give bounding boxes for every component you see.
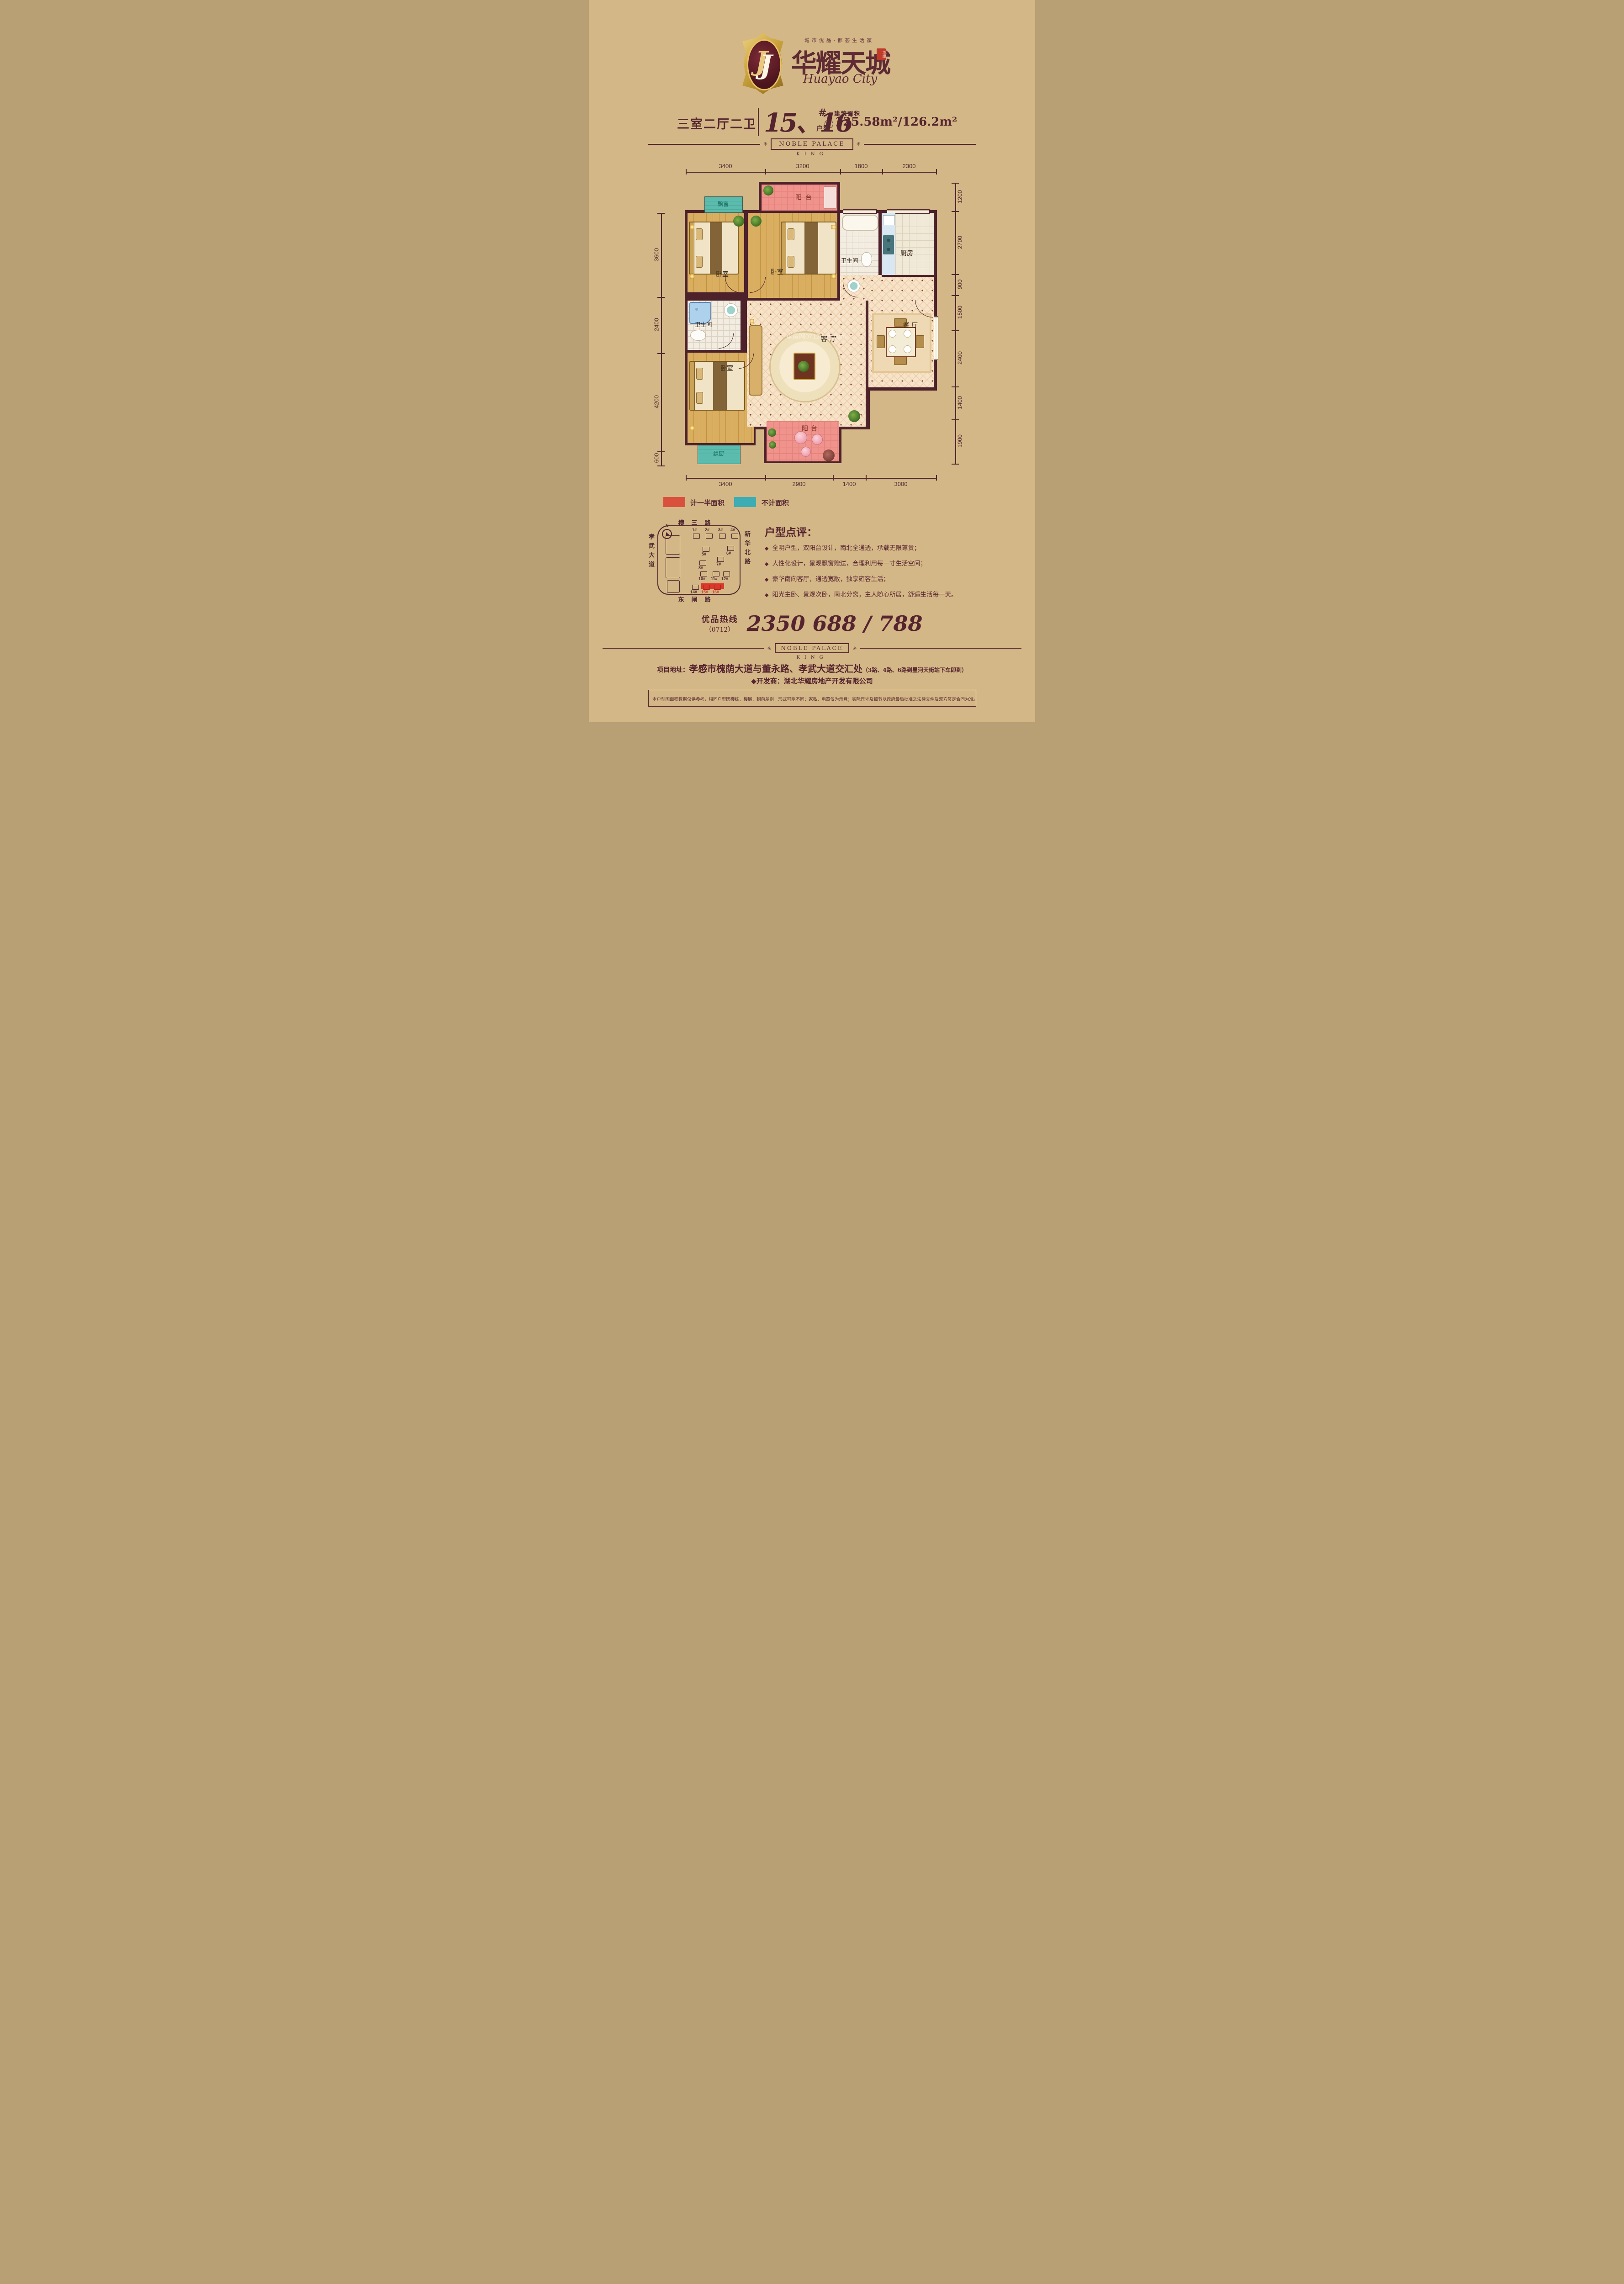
coffee-table-flowers — [798, 361, 809, 372]
dim-tick — [686, 475, 687, 481]
dining-chair — [916, 335, 924, 348]
stove — [883, 235, 894, 254]
review-bullet-text: 豪华南向客厅，通透宽敞，独享雍容生活； — [772, 576, 889, 583]
dim-right-4: 1500 — [957, 303, 963, 322]
dim-tick — [657, 213, 665, 214]
bedroom-1-label: 卧室 — [716, 270, 729, 279]
unit-hash: # — [818, 107, 826, 119]
sitemap-road-bottom: 东闸路 — [657, 595, 739, 603]
dining-room-label: 餐厅 — [903, 321, 920, 330]
balcony-south-plant — [768, 428, 776, 437]
plate — [904, 345, 911, 353]
area-value: 125.58m²/126.2m² — [835, 115, 957, 129]
review-bullets: ◆全明户型，双阳台设计，南北全通透，承载无限尊贵； ◆人性化设计，景观飘窗赠送，… — [765, 545, 984, 607]
kitchen-label: 厨房 — [900, 248, 913, 258]
review-bullet-text: 人性化设计，景观飘窗赠送，合理利用每一寸生活空间； — [772, 560, 926, 567]
diamond-icon: ◆ — [765, 576, 768, 582]
building-1 — [693, 534, 700, 539]
dim-top-1: 3400 — [712, 163, 739, 169]
banner-line-left — [603, 648, 764, 649]
building-label-7: 7# — [716, 562, 721, 566]
building-16 — [714, 585, 721, 590]
address-row: 项目地址：孝感市槐荫大道与董永路、孝武大道交汇处（3路、4路、6路到星河天街站下… — [589, 661, 1035, 675]
dim-right-5: 2400 — [957, 349, 963, 367]
hotline: 优品热线 （0712） 2350 688 / 788 — [589, 611, 1035, 636]
building-label-10: 10# — [698, 576, 705, 581]
plate — [889, 330, 896, 338]
address-note: （3路、4路、6路到星河天街站下车即到） — [862, 667, 967, 673]
banner-ornament-left: ✳ — [763, 141, 767, 147]
bed-2-headboard — [782, 222, 786, 274]
sitemap-road-left: 孝武大道 — [646, 534, 655, 570]
amenity-building — [666, 535, 680, 555]
building-label-6: 6# — [726, 551, 731, 555]
dim-tick — [686, 169, 687, 174]
building-label-11: 11# — [711, 576, 718, 581]
balcony-north-plant — [763, 185, 773, 196]
dim-tick — [657, 297, 665, 298]
dim-tick — [882, 169, 883, 174]
brand-emblem: J J — [736, 33, 790, 94]
review-title: 户型点评： — [765, 523, 817, 539]
unit-rooms: 三室二厅二卫 — [677, 114, 756, 132]
dim-bottom-4: 3000 — [887, 481, 915, 487]
dim-left-1: 3600 — [653, 246, 660, 264]
banner-king-bottom: KING — [589, 655, 1035, 660]
bed-2-pillow — [788, 228, 794, 240]
dim-right-6: 1400 — [957, 394, 963, 412]
banner-ornament-right: ✳ — [852, 645, 857, 651]
legend-half-label: 计一半面积 — [690, 498, 725, 508]
diamond-icon: ◆ — [765, 545, 768, 551]
noble-banner-bottom: ✳ NOBLE PALACE ✳ — [603, 643, 1021, 653]
building-10 — [700, 571, 707, 576]
area-approx: 约 — [825, 120, 833, 128]
dim-right-3: 900 — [957, 275, 963, 294]
banner-king-top: KING — [589, 152, 1035, 157]
dim-top-3: 1800 — [847, 163, 875, 169]
toilet-1 — [861, 252, 872, 267]
balcony-south-label: 阳台 — [802, 424, 820, 433]
balcony-north-label: 阳台 — [795, 193, 815, 202]
amenity-building — [666, 557, 680, 578]
bedroom-2-label: 卧室 — [771, 267, 783, 276]
building-label-16: 16# — [712, 590, 719, 594]
hotline-area-code: （0712） — [701, 625, 738, 634]
review-bullet: ◆全明户型，双阳台设计，南北全通透，承载无限尊贵； — [765, 545, 984, 552]
bed-2 — [781, 222, 836, 275]
bed-1-pillow — [696, 256, 703, 268]
building-6 — [727, 546, 734, 551]
hotline-label: 优品热线 — [701, 613, 738, 625]
living-plant — [848, 410, 860, 422]
dim-tick — [866, 475, 867, 481]
disclaimer-text: 本户型图面积数据仅供参考，相同户型因楼栋、楼层、朝向差别，形式可能不同；家私、电… — [652, 697, 978, 702]
bedroom-2-plant — [751, 216, 762, 227]
diamond-icon: ◆ — [765, 561, 768, 567]
bed-3-headboard — [690, 362, 695, 410]
review-bullet-text: 全明户型，双阳台设计，南北全通透，承载无限尊贵； — [772, 545, 920, 552]
dim-tick — [952, 274, 959, 275]
banner-line-right — [864, 144, 976, 145]
banner-ornament-left: ✳ — [767, 645, 771, 651]
building-label-14: 14# — [690, 590, 697, 594]
legend-none-swatch — [734, 497, 756, 507]
building-label-2: 2# — [705, 528, 709, 532]
dim-line-bottom — [686, 478, 936, 479]
dim-tick — [765, 169, 766, 174]
sitemap-road-top: 横三路 — [657, 518, 739, 527]
banner-ornament-right: ✳ — [857, 141, 861, 147]
balcony-table — [801, 447, 811, 457]
bed-3 — [689, 361, 745, 411]
dim-tick — [657, 451, 665, 452]
banner-title: NOBLE PALACE — [771, 138, 853, 150]
bed-2-pillow — [788, 256, 794, 268]
building-11 — [713, 571, 719, 576]
building-3 — [719, 534, 726, 539]
brand-seal: 华耀 — [877, 48, 886, 60]
bathroom-2-label: 卫生间 — [695, 320, 712, 328]
dim-tick — [936, 475, 937, 481]
disclaimer-box: 本户型图面积数据仅供参考，相同户型因楼栋、楼层、朝向差别，形式可能不同；家私、电… — [648, 690, 976, 707]
compass-n-label: N — [666, 523, 669, 528]
wall-lamp — [690, 274, 694, 279]
balcony-table — [812, 434, 823, 445]
brand-name-en: Huayao City — [799, 72, 881, 86]
building-14 — [692, 585, 699, 590]
bed-1-blanket — [710, 222, 722, 274]
dim-right-2: 2700 — [957, 233, 963, 252]
dim-line-top — [686, 172, 936, 173]
title-divider — [758, 108, 759, 136]
bathtub — [842, 215, 878, 231]
sitemap-road-right: 新华北路 — [742, 531, 751, 567]
dim-right-7: 1900 — [957, 432, 963, 450]
dim-tick — [952, 419, 959, 420]
bed-3-pillow — [696, 368, 703, 380]
building-label-12: 12# — [721, 576, 728, 581]
bay-window-north-label: 飘窗 — [704, 200, 742, 208]
review-bullet: ◆阳光主卧、景观次卧，南北分离，主人随心所居，舒适生活每一天。 — [765, 591, 984, 599]
dining-chair — [877, 335, 885, 348]
dim-tick — [657, 465, 665, 466]
building-label-3: 3# — [718, 528, 723, 532]
plate — [889, 345, 896, 353]
dim-right-1: 1200 — [957, 188, 963, 206]
dim-top-4: 2300 — [895, 163, 923, 169]
plate — [904, 330, 911, 338]
legend-half-swatch — [663, 497, 685, 507]
dim-bottom-3: 1400 — [836, 481, 863, 487]
balcony-table — [794, 431, 807, 444]
hotline-label-block: 优品热线 （0712） — [701, 613, 738, 634]
dim-line-left — [661, 213, 662, 465]
noble-banner-top: ✳ NOBLE PALACE ✳ — [648, 138, 976, 150]
wall-lamp — [831, 274, 836, 279]
building-label-1: 1# — [692, 528, 697, 532]
dim-tick — [952, 211, 959, 212]
watermark: 孝房网0712fang.com — [786, 332, 846, 341]
sink-2 — [724, 303, 738, 317]
building-label-5: 5# — [702, 552, 706, 556]
dim-tick — [840, 169, 841, 174]
diamond-icon: ◆ — [765, 592, 768, 598]
bed-1-pillow — [696, 228, 703, 240]
building-12 — [723, 571, 730, 576]
washing-machine — [824, 186, 836, 209]
wall-lamp — [690, 225, 694, 229]
poster: J J 城市优品·都荟生活家 华耀天城 华耀 Huayao City 三室二厅二… — [589, 0, 1035, 722]
balcony-south-plant — [769, 441, 776, 449]
window-dining — [934, 316, 938, 360]
review-bullet: ◆人性化设计，景观飘窗赠送，合理利用每一寸生活空间； — [765, 560, 984, 568]
dining-chair — [894, 357, 907, 365]
balcony-bush — [823, 449, 835, 461]
building-label-15: 15# — [701, 590, 708, 594]
dim-line-right — [955, 183, 956, 464]
building-4 — [731, 534, 738, 539]
emblem-monogram: J — [760, 49, 772, 80]
building-2 — [706, 534, 713, 539]
banner-line-left — [648, 144, 760, 145]
address-label: 项目地址： — [657, 666, 689, 674]
toilet-2 — [690, 330, 706, 341]
wall-lamp — [831, 225, 836, 229]
amenity-building — [667, 580, 680, 593]
banner-title: NOBLE PALACE — [775, 643, 850, 653]
address-value: 孝感市槐荫大道与董永路、孝武大道交汇处 — [689, 663, 862, 674]
dim-tick — [952, 464, 959, 465]
bed-2-blanket — [804, 222, 819, 274]
dim-tick — [936, 169, 937, 174]
dim-tick — [952, 183, 959, 184]
bay-window-south-label: 飘窗 — [698, 449, 740, 457]
window-bath1 — [843, 209, 877, 214]
bedroom-3-label: 卧室 — [720, 364, 733, 373]
bed-1 — [689, 222, 739, 275]
building-8 — [699, 560, 706, 566]
dim-tick — [833, 475, 834, 481]
banner-line-right — [860, 648, 1021, 649]
legend-none-label: 不计面积 — [762, 498, 789, 508]
bed-1-headboard — [690, 222, 694, 274]
dim-tick — [952, 386, 959, 387]
bedroom-1-plant — [733, 216, 744, 227]
dim-left-2: 2400 — [653, 316, 660, 334]
building-15 — [703, 585, 710, 590]
building-7 — [717, 557, 724, 562]
dim-top-2: 3200 — [789, 163, 816, 169]
review-bullet: ◆豪华南向客厅，通透宽敞，独享雍容生活； — [765, 576, 984, 583]
dim-tick — [765, 475, 766, 481]
dim-left-3: 4200 — [653, 393, 660, 411]
review-bullet-text: 阳光主卧、景观次卧，南北分离，主人随心所居，舒适生活每一天。 — [772, 591, 957, 598]
dim-tick — [657, 353, 665, 354]
developer-row: ◆开发商：湖北华耀房地产开发有限公司 — [589, 676, 1035, 686]
dim-tick — [952, 330, 959, 331]
wall-lamp — [750, 319, 754, 323]
hotline-number: 2350 688 / 788 — [747, 611, 923, 636]
dim-bottom-2: 2900 — [785, 481, 813, 487]
bathroom-1-label: 卫生间 — [841, 256, 858, 264]
kitchen-sink — [883, 215, 895, 225]
building-label-4: 4# — [730, 528, 735, 532]
dim-tick — [952, 295, 959, 296]
dim-bottom-1: 3400 — [712, 481, 739, 487]
wall-lamp — [690, 426, 694, 430]
bed-3-pillow — [696, 392, 703, 404]
building-label-8: 8# — [698, 566, 703, 570]
building-5 — [703, 547, 709, 552]
